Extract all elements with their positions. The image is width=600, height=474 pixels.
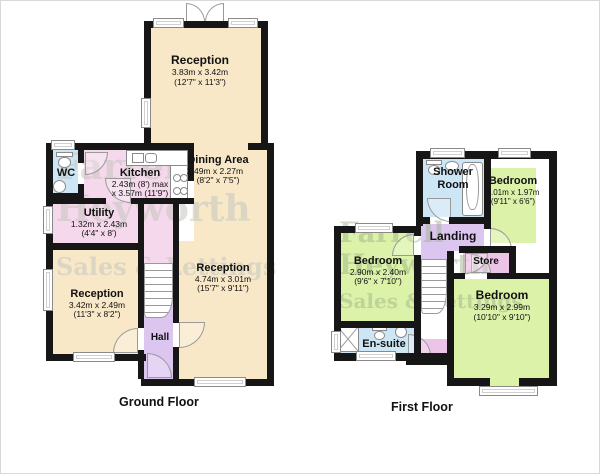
window <box>153 18 184 28</box>
wall <box>46 243 144 250</box>
wall <box>334 321 421 328</box>
wall <box>144 21 151 150</box>
staircase-ground <box>144 263 173 318</box>
reception-top-area <box>151 28 261 143</box>
toilet-icon <box>372 326 387 341</box>
wall <box>414 255 421 321</box>
window <box>43 206 53 234</box>
corridor-area <box>144 204 173 266</box>
ground-floor-label: Ground Floor <box>119 395 199 409</box>
window <box>430 148 465 158</box>
dining-reception-area <box>194 150 267 379</box>
wall <box>78 150 84 163</box>
kitchen-sink-icon <box>130 152 158 163</box>
window <box>498 148 531 158</box>
utility-area <box>53 204 138 243</box>
window <box>331 331 341 353</box>
wall <box>53 198 106 204</box>
first-floor-label: First Floor <box>391 400 453 414</box>
floorplan-canvas: Farrell Heyworth Sales & Lettings Farrel… <box>0 0 600 474</box>
window <box>228 18 258 28</box>
bathtub-icon <box>462 162 483 216</box>
double-door-right-arc <box>205 3 224 22</box>
wall <box>261 21 268 150</box>
wall <box>173 347 179 379</box>
wall <box>449 217 491 224</box>
double-door-left-arc <box>186 3 205 22</box>
wall <box>416 151 423 226</box>
window <box>73 352 115 362</box>
wall <box>447 273 465 279</box>
reception-main-area <box>179 241 194 379</box>
wall <box>138 204 144 328</box>
window <box>194 377 246 387</box>
wall <box>447 251 454 386</box>
wall <box>423 217 430 224</box>
wall <box>144 143 194 150</box>
sink-icon <box>53 180 66 193</box>
window <box>51 140 75 150</box>
staircase-first <box>421 259 447 314</box>
dining-opening <box>194 143 248 150</box>
wall <box>509 246 516 279</box>
window <box>355 223 393 233</box>
wall <box>414 226 421 236</box>
wall <box>414 321 421 361</box>
wall <box>487 273 549 279</box>
bedroom-main-area <box>454 279 549 378</box>
wall <box>521 378 549 386</box>
wall <box>188 144 194 181</box>
window <box>43 269 53 311</box>
wall <box>447 378 487 386</box>
window <box>479 386 538 396</box>
wall <box>173 204 179 323</box>
toilet-icon <box>426 160 442 176</box>
window <box>356 351 396 361</box>
shower-room-door-arc <box>427 198 451 222</box>
wall <box>549 151 557 386</box>
wall <box>267 143 274 386</box>
wall <box>138 350 144 379</box>
window <box>141 98 151 128</box>
toilet-icon <box>56 152 73 169</box>
wall <box>459 246 516 253</box>
sink-icon <box>445 161 459 171</box>
wall <box>46 143 53 361</box>
